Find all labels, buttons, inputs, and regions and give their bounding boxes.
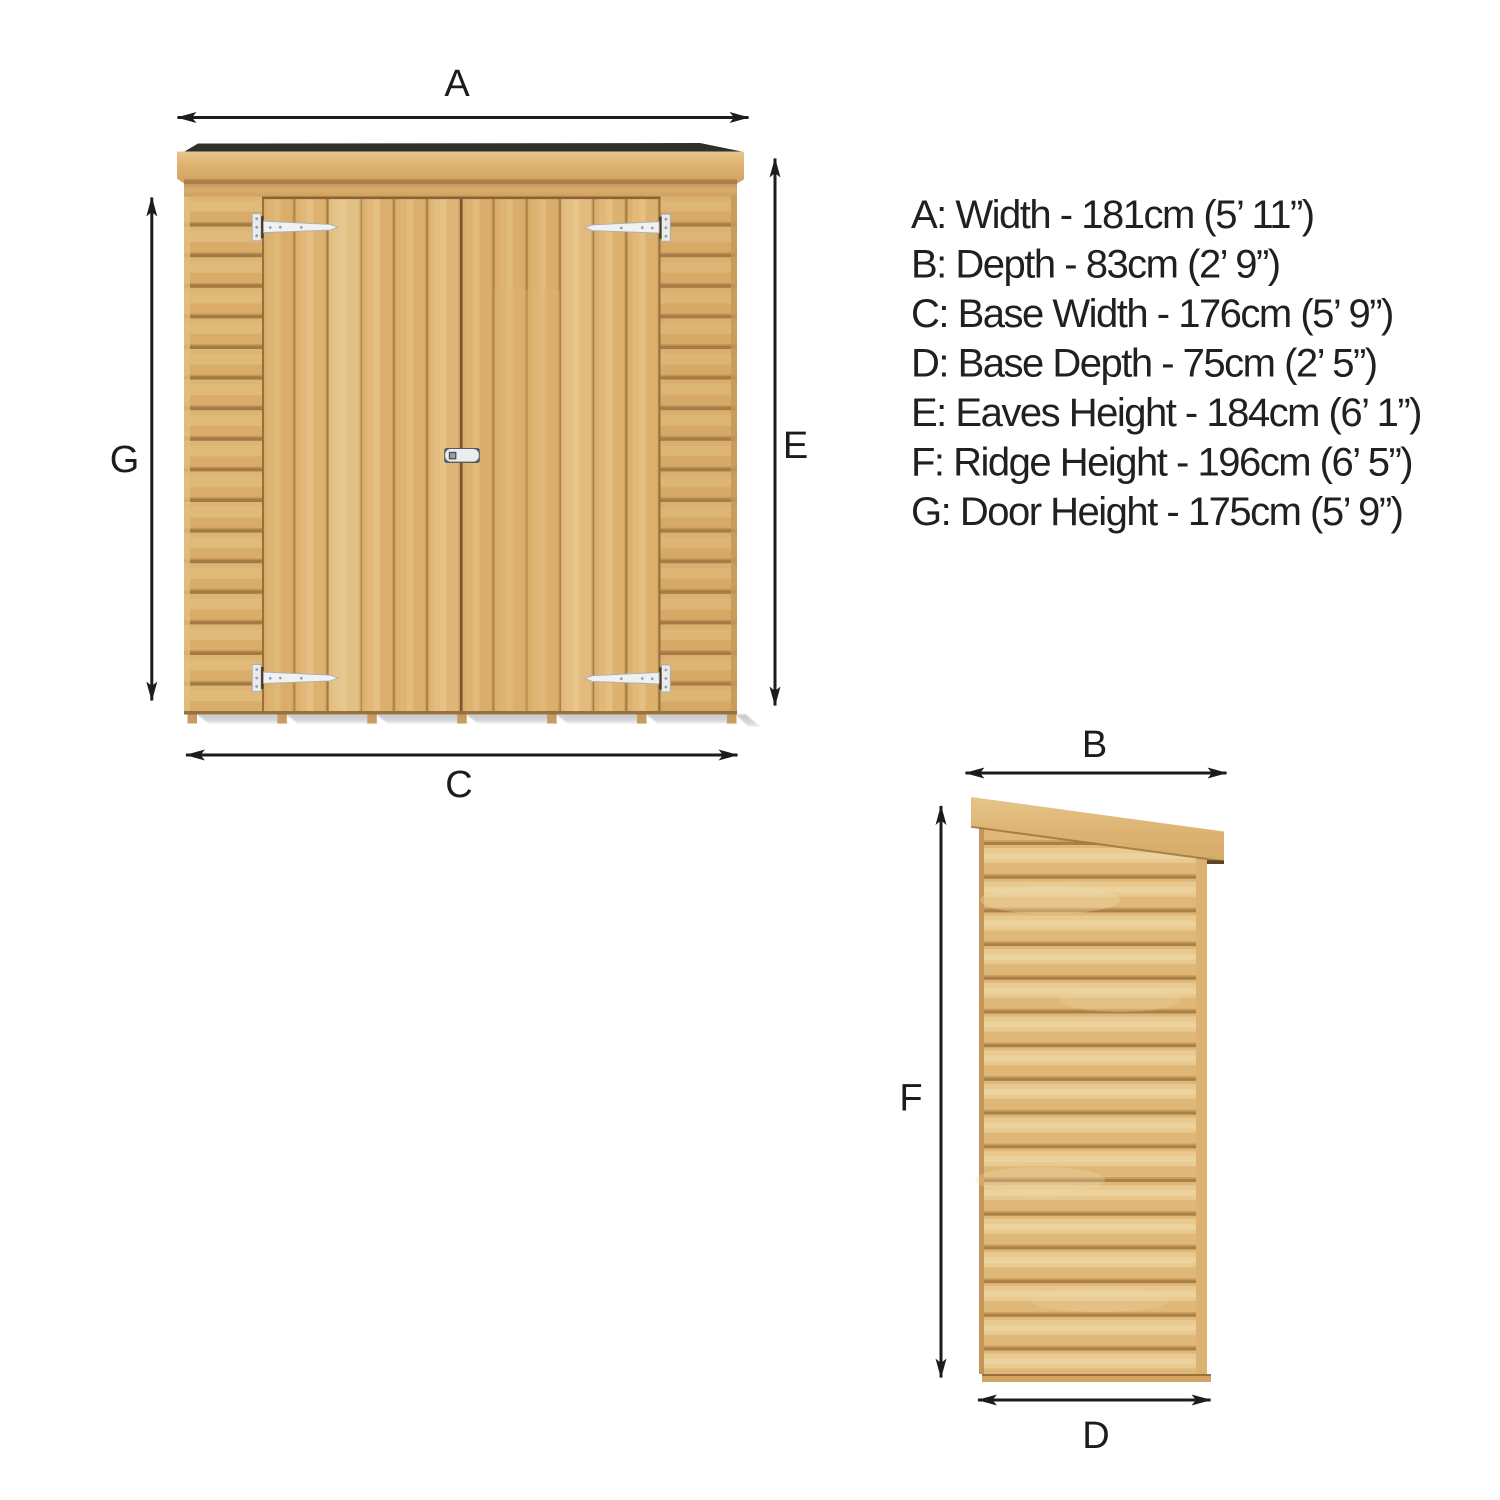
svg-text:C: Base Width - 176cm (5’ 9”): C: Base Width - 176cm (5’ 9”) — [911, 292, 1393, 336]
svg-text:E: E — [783, 425, 808, 467]
svg-text:G: G — [110, 439, 140, 481]
svg-text:C: C — [445, 764, 472, 806]
svg-text:E: Eaves Height - 184cm (6’ 1”: E: Eaves Height - 184cm (6’ 1”) — [911, 391, 1421, 435]
svg-text:B: B — [1082, 724, 1107, 766]
svg-text:F: Ridge Height - 196cm (6’ 5”: F: Ridge Height - 196cm (6’ 5”) — [911, 441, 1412, 485]
svg-text:G: Door Height - 175cm (5’ 9”): G: Door Height - 175cm (5’ 9”) — [911, 490, 1402, 534]
svg-text:F: F — [899, 1078, 922, 1120]
svg-text:D: D — [1082, 1415, 1109, 1457]
svg-text:A: Width - 181cm (5’ 11”): A: Width - 181cm (5’ 11”) — [911, 193, 1314, 237]
svg-text:D: Base Depth - 75cm (2’ 5”): D: Base Depth - 75cm (2’ 5”) — [911, 342, 1377, 386]
svg-text:A: A — [444, 63, 470, 105]
svg-text:B: Depth - 83cm (2’ 9”): B: Depth - 83cm (2’ 9”) — [911, 243, 1280, 287]
